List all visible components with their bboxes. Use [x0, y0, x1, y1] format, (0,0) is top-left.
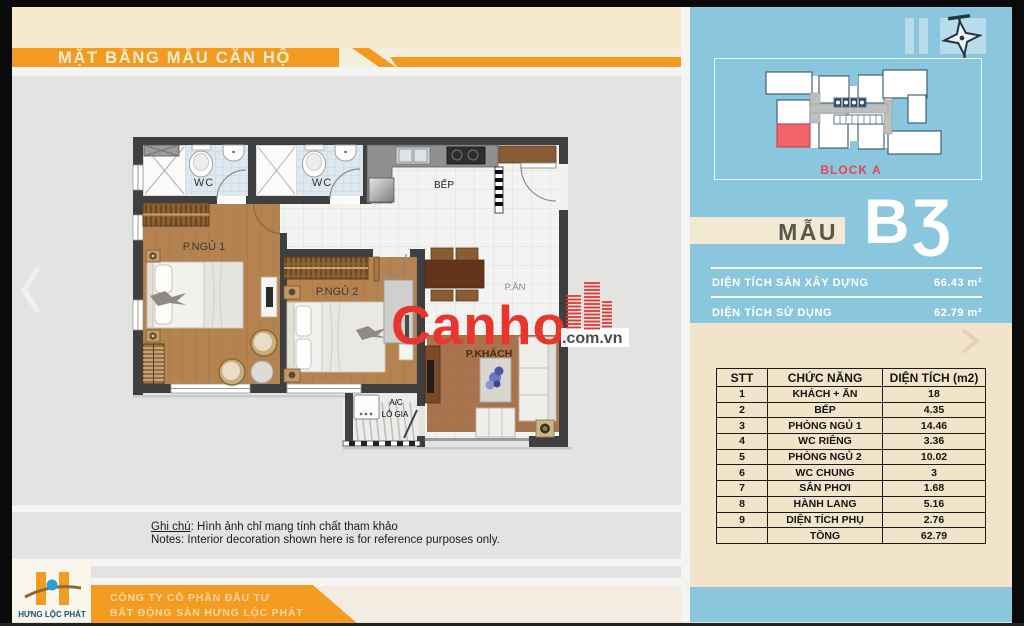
svg-text:WC: WC [312, 177, 332, 189]
svg-text:HƯNG LỘC PHÁT: HƯNG LỘC PHÁT [18, 610, 86, 619]
svg-text:P.NGỦ 2: P.NGỦ 2 [316, 285, 359, 298]
svg-text:BẾP: BẾP [434, 178, 454, 191]
svg-text:P.ĂN: P.ĂN [505, 282, 526, 293]
svg-text:WC: WC [194, 177, 214, 189]
svg-text:.com.vn: .com.vn [562, 330, 622, 347]
svg-text:A/C: A/C [389, 398, 403, 407]
svg-text:Canho: Canho [391, 294, 567, 356]
svg-text:LÔ GIA: LÔ GIA [382, 410, 409, 419]
svg-text:P.NGỦ 1: P.NGỦ 1 [183, 240, 226, 253]
